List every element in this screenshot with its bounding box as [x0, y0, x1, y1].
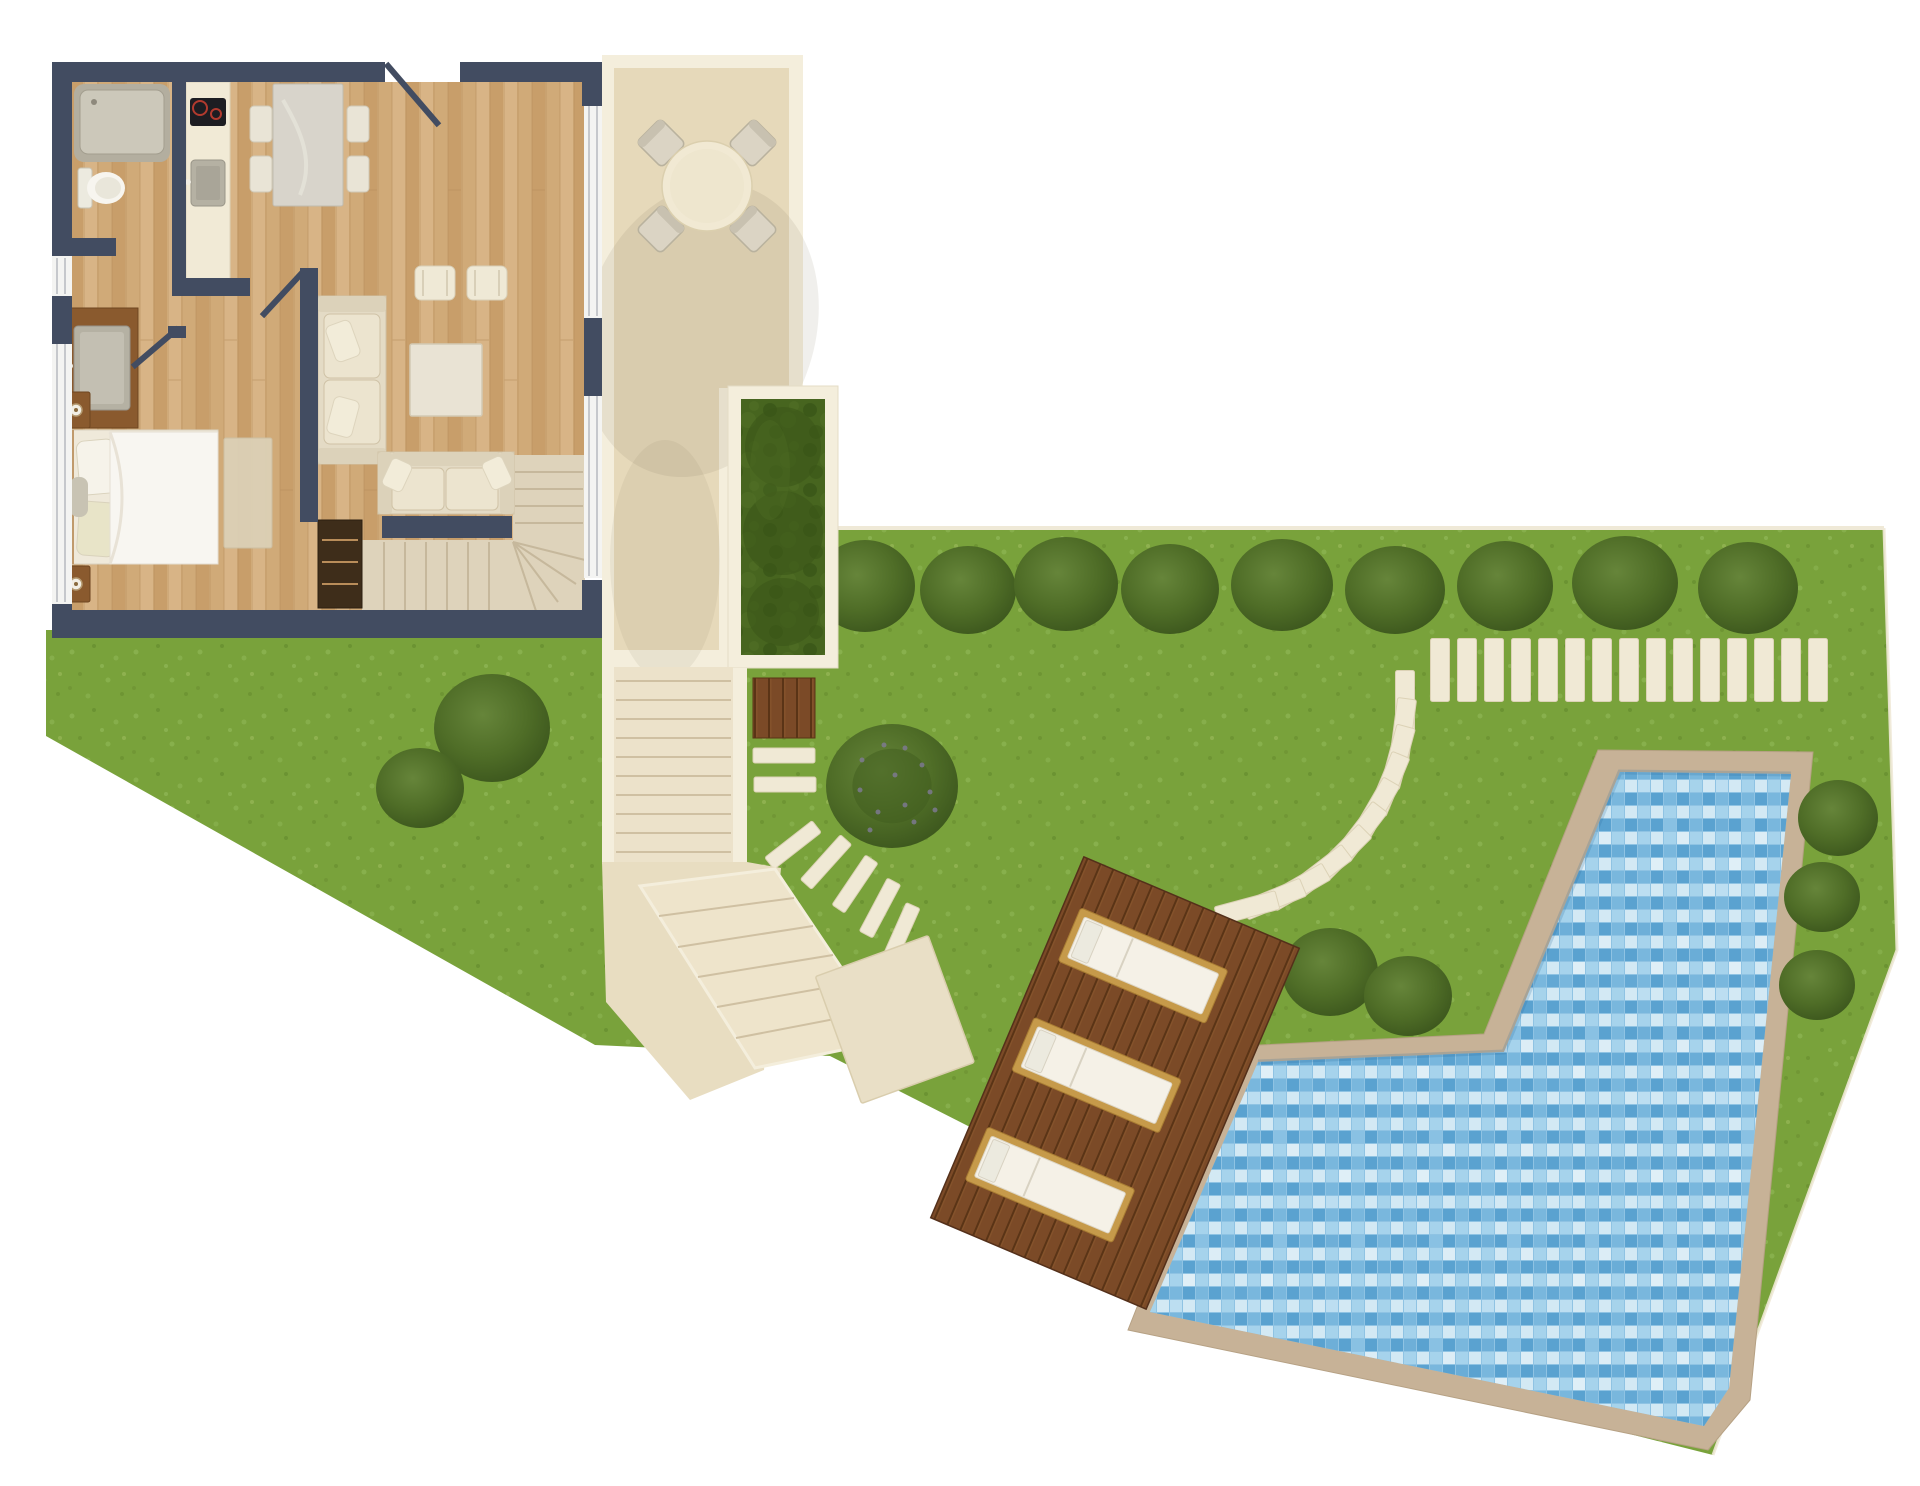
flower-dot: [912, 820, 917, 825]
stepping-stone: [1755, 639, 1774, 702]
stepping-stone: [1566, 639, 1585, 702]
stair-treads: [614, 667, 733, 864]
poolside-bush: [1798, 780, 1878, 856]
lamp-bulb: [74, 582, 78, 586]
garden-bush: [1282, 928, 1378, 1016]
flower-dot: [868, 828, 873, 833]
ottoman: [415, 266, 455, 300]
stepping-stone: [1593, 639, 1612, 702]
outdoor-table-inner: [670, 149, 744, 223]
dining-chair: [250, 106, 272, 142]
stepping-stone: [1728, 639, 1747, 702]
tree-shadow: [610, 440, 720, 680]
hedge-row-bush: [1121, 544, 1219, 634]
flower-dot: [903, 746, 908, 751]
coffee-table: [410, 344, 482, 416]
hedge-row-bush: [1698, 542, 1798, 634]
sofa-arm: [318, 296, 386, 312]
outdoor-dining-table: [662, 141, 752, 231]
wall: [52, 610, 602, 638]
hedge-row-bush: [1457, 541, 1553, 631]
stepping-stone: [1539, 639, 1558, 702]
hedge-row-bush: [1014, 537, 1118, 631]
wardrobe: [318, 520, 362, 608]
garden-slab: [754, 777, 816, 792]
wall: [460, 62, 584, 82]
shower-drain: [91, 99, 97, 105]
wall: [52, 238, 116, 256]
duvet: [110, 432, 218, 564]
stepping-stone: [1782, 639, 1801, 702]
garden-bush: [376, 748, 464, 828]
site-plan-rendering: [0, 0, 1920, 1486]
hedge-row-bush: [1231, 539, 1333, 631]
ottoman: [467, 266, 507, 300]
poolside-bush: [1784, 862, 1860, 932]
wall: [300, 268, 318, 522]
toilet-seat: [95, 177, 121, 199]
stepping-stone: [1620, 639, 1639, 702]
wall: [582, 62, 602, 106]
flower-dot: [903, 803, 908, 808]
stepping-stone: [1431, 639, 1450, 702]
wall: [52, 296, 72, 344]
stepping-stone: [1512, 639, 1531, 702]
wall: [52, 62, 72, 242]
stepping-stone: [1647, 639, 1666, 702]
flower-dot: [860, 758, 865, 763]
floor-plan-image: [0, 0, 1920, 1486]
hedge-highlight: [750, 420, 790, 520]
sofa-arm: [318, 448, 386, 464]
wall: [584, 318, 602, 396]
flower-dot: [876, 810, 881, 815]
flower-dot: [928, 790, 933, 795]
poolside-bush: [1779, 950, 1855, 1020]
hedge-planter: [728, 386, 838, 668]
stepping-stone: [1485, 639, 1504, 702]
wall: [382, 516, 512, 538]
flower-dot: [920, 763, 925, 768]
stair-rail: [733, 668, 747, 864]
wall: [582, 580, 602, 614]
stepping-stone: [1458, 639, 1477, 702]
dining-chair: [347, 156, 369, 192]
timber-pad-planks: [753, 678, 815, 738]
house-floor-plan: [52, 62, 602, 638]
window: [584, 102, 602, 318]
stepping-stone: [1809, 639, 1828, 702]
flower-dot: [893, 773, 898, 778]
bolster-roll: [70, 477, 88, 517]
kitchen: [185, 82, 230, 280]
stair-rail: [602, 663, 614, 864]
window: [584, 394, 602, 578]
hedge-row-bush: [1572, 536, 1678, 630]
wall: [172, 82, 186, 280]
hedge-blob: [747, 578, 819, 646]
hedge-row-bush: [1345, 546, 1445, 634]
garden-bush: [1364, 956, 1452, 1036]
wall: [52, 62, 385, 82]
stepping-stone: [1674, 639, 1693, 702]
window: [52, 256, 72, 296]
garden-slab: [753, 748, 815, 763]
stepping-stone: [1701, 639, 1720, 702]
outdoor-staircase-upper: [602, 663, 747, 864]
flower-dot: [933, 808, 938, 813]
lamp-bulb: [74, 408, 78, 412]
hedge-row-bush: [920, 546, 1016, 634]
wall: [172, 278, 250, 296]
flower-dot: [858, 788, 863, 793]
kitchen-basin: [196, 166, 220, 200]
timber-pad: [753, 678, 815, 738]
bedroom-rug: [224, 438, 272, 548]
flower-dot: [882, 743, 887, 748]
window: [52, 342, 72, 604]
flowering-bush: [826, 724, 958, 848]
dining-chair: [250, 156, 272, 192]
dining-chair: [347, 106, 369, 142]
